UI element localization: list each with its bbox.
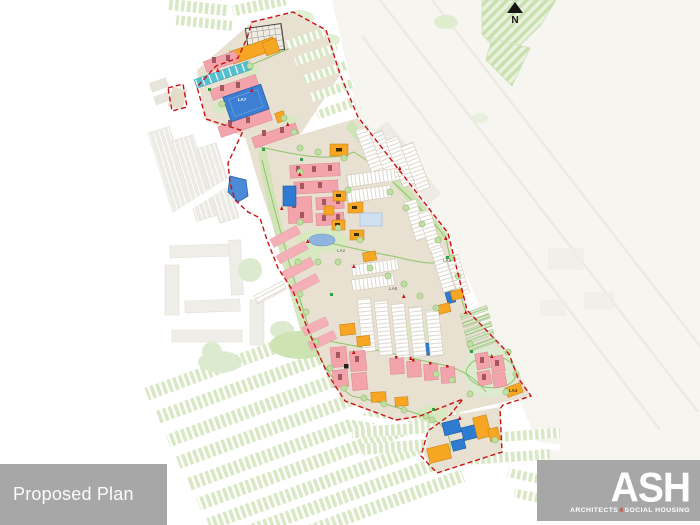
area-label: LA6 [443,258,452,263]
north-label: N [511,15,518,26]
site-plan-svg: LA7LA2LA8LA6LA4 N [0,0,700,525]
area-label: LA7 [238,97,247,102]
slide: LA7LA2LA8LA6LA4 N Proposed Plan ASH ARCH… [0,0,700,525]
community-building [360,213,382,226]
area-label: LA2 [337,248,346,253]
site-plan-map: LA7LA2LA8LA6LA4 N [0,0,700,525]
area-label: LA4 [509,388,518,393]
context-parking-courts [148,127,239,224]
ash-logo: ASH ARCHITECTS4SOCIAL HOUSING [537,460,700,521]
slide-title-box: Proposed Plan [0,464,167,525]
ash-logo-name: ASH [611,471,690,505]
slide-title: Proposed Plan [13,484,134,505]
area-label: LA8 [389,286,398,291]
